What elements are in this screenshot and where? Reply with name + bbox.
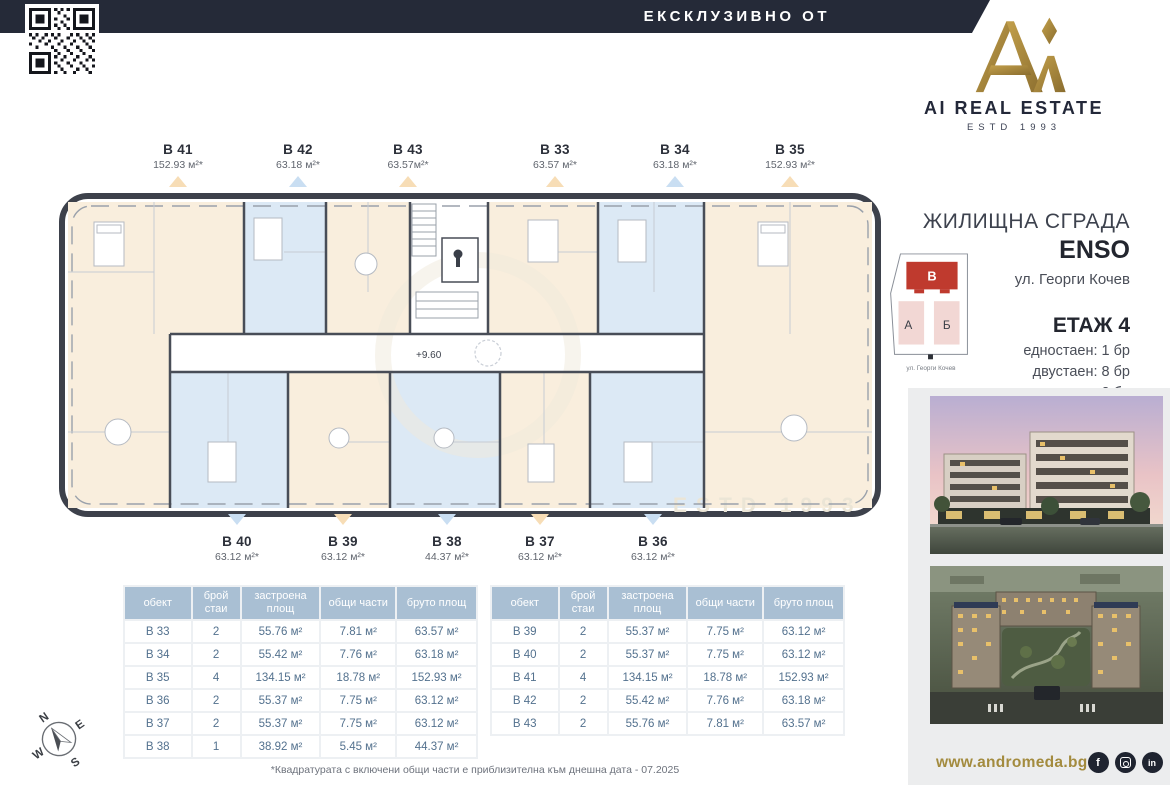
footnote: *Квадратурата с включени общи части е пр… — [60, 764, 890, 776]
compass-e: E — [73, 717, 87, 732]
unit-id: В 40 — [182, 534, 292, 550]
compass-icon: N E S W — [20, 700, 98, 778]
unit-label-b37: В 37 63.12 м²* — [485, 514, 595, 563]
table-cell: В 40 — [492, 644, 558, 665]
unit-id: В 39 — [288, 534, 398, 550]
footer: www.andromeda.bg f in — [936, 752, 1162, 773]
table-cell: В 35 — [125, 667, 191, 688]
floor-plan-area: ESTD 1993 — [58, 192, 882, 518]
compass-s: S — [69, 755, 83, 770]
unit-area: 63.18 м²* — [243, 159, 353, 171]
unit-area: 63.12 м²* — [598, 551, 708, 563]
table-cell: 55.37 м² — [609, 644, 687, 665]
table-row: В 42255.42 м²7.76 м²63.18 м² — [492, 690, 843, 711]
render-exterior — [930, 396, 1163, 554]
unit-marker-icon — [169, 176, 187, 187]
table-cell: 2 — [193, 690, 240, 711]
table-cell: 7.76 м² — [688, 690, 762, 711]
instagram-icon[interactable] — [1115, 752, 1136, 773]
table-cell: 55.42 м² — [242, 644, 320, 665]
col-rooms: брой стаи — [193, 587, 240, 619]
table-cell: 2 — [560, 713, 607, 734]
table-cell: 63.18 м² — [764, 690, 843, 711]
unit-id: В 37 — [485, 534, 595, 550]
unit-id: В 33 — [500, 142, 610, 158]
table-cell: В 41 — [492, 667, 558, 688]
table-cell: 2 — [560, 690, 607, 711]
table-cell: 7.75 м² — [321, 713, 395, 734]
table-cell: 134.15 м² — [609, 667, 687, 688]
unit-area: 63.12 м²* — [485, 551, 595, 563]
table-cell: 7.81 м² — [321, 621, 395, 642]
table-cell: 7.75 м² — [688, 621, 762, 642]
table-cell: 18.78 м² — [321, 667, 395, 688]
unit-label-b41: В 41 152.93 м²* — [123, 142, 233, 192]
floor-plan: ESTD 1993 — [58, 192, 882, 518]
table-cell: В 33 — [125, 621, 191, 642]
unit-id: В 35 — [735, 142, 845, 158]
table-row: В 36255.37 м²7.75 м²63.12 м² — [125, 690, 476, 711]
unit-id: В 42 — [243, 142, 353, 158]
unit-area: 152.93 м²* — [735, 159, 845, 171]
unit-marker-icon — [666, 176, 684, 187]
table-cell: 2 — [560, 644, 607, 665]
unit-area: 63.57 м²* — [500, 159, 610, 171]
unit-label-b33: В 33 63.57 м²* — [500, 142, 610, 192]
website-link[interactable]: www.andromeda.bg — [936, 754, 1088, 772]
table-cell: 44.37 м² — [397, 736, 476, 757]
unit-b34-region — [598, 202, 704, 334]
unit-marker-icon — [644, 514, 662, 525]
brand-name: AI REAL ESTATE — [924, 98, 1104, 119]
table-cell: 63.12 м² — [764, 621, 843, 642]
unit-label-b40: В 40 63.12 м²* — [182, 514, 292, 563]
brand-estd: ESTD 1993 — [967, 122, 1061, 133]
col-common-parts: общи части — [688, 587, 762, 619]
col-built-area: застроена площ — [609, 587, 687, 619]
unit-area: 152.93 м²* — [123, 159, 233, 171]
brand-mark-icon — [939, 8, 1089, 96]
col-gross-area: бруто площ — [397, 587, 476, 619]
unit-area: 63.12 м²* — [182, 551, 292, 563]
table-row: В 39255.37 м²7.75 м²63.12 м² — [492, 621, 843, 642]
site-plan: В А Б ул. Георги Кочев — [886, 250, 976, 378]
unit-marker-icon — [531, 514, 549, 525]
table-cell: 7.81 м² — [688, 713, 762, 734]
facebook-icon[interactable]: f — [1088, 752, 1109, 773]
site-street-label: ул. Георги Кочев — [906, 365, 956, 372]
unit-area: 63.18 м²* — [620, 159, 730, 171]
table-header-row: обект брой стаи застроена площ общи част… — [492, 587, 843, 619]
table-cell: В 42 — [492, 690, 558, 711]
unit-label-b36: В 36 63.12 м²* — [598, 514, 708, 563]
unit-id: В 41 — [123, 142, 233, 158]
table-cell: 63.57 м² — [764, 713, 843, 734]
areas-table-left: обект брой стаи застроена площ общи част… — [123, 585, 478, 759]
table-row: В 34255.42 м²7.76 м²63.18 м² — [125, 644, 476, 665]
table-cell: 4 — [193, 667, 240, 688]
unit-marker-icon — [546, 176, 564, 187]
table-cell: 5.45 м² — [321, 736, 395, 757]
table-cell: В 34 — [125, 644, 191, 665]
table-cell: 63.12 м² — [397, 690, 476, 711]
table-cell: 55.76 м² — [609, 713, 687, 734]
table-cell: 38.92 м² — [242, 736, 320, 757]
unit-label-b43: В 43 63.57м²* — [353, 142, 463, 192]
table-cell: В 43 — [492, 713, 558, 734]
unit-label-b39: В 39 63.12 м²* — [288, 514, 398, 563]
compass-n: N — [37, 710, 51, 725]
table-row: В 40255.37 м²7.75 м²63.12 м² — [492, 644, 843, 665]
table-cell: В 38 — [125, 736, 191, 757]
unit-b40-region — [170, 372, 288, 508]
col-object: обект — [492, 587, 558, 619]
header-banner: ЕКСКЛУЗИВНО ОТ — [0, 0, 990, 33]
table-row: В 43255.76 м²7.81 м²63.57 м² — [492, 713, 843, 734]
col-rooms: брой стаи — [560, 587, 607, 619]
table-cell: 7.75 м² — [321, 690, 395, 711]
table-cell: 63.12 м² — [764, 644, 843, 665]
unit-marker-icon — [228, 514, 246, 525]
level-mark: +9.60 — [416, 350, 442, 361]
unit-marker-icon — [399, 176, 417, 187]
site-block-b-label: Б — [943, 318, 951, 332]
table-cell: В 36 — [125, 690, 191, 711]
table-cell: В 39 — [492, 621, 558, 642]
table-cell: 55.37 м² — [242, 713, 320, 734]
table-row: В 38138.92 м²5.45 м²44.37 м² — [125, 736, 476, 757]
table-cell: 152.93 м² — [764, 667, 843, 688]
table-cell: 2 — [193, 713, 240, 734]
table-row: В 354134.15 м²18.78 м²152.93 м² — [125, 667, 476, 688]
unit-id: В 43 — [353, 142, 463, 158]
qr-pattern — [29, 8, 95, 74]
col-gross-area: бруто площ — [764, 587, 843, 619]
table-cell: В 37 — [125, 713, 191, 734]
unit-marker-icon — [289, 176, 307, 187]
table-cell: 2 — [193, 621, 240, 642]
table-cell: 2 — [560, 621, 607, 642]
site-block-a-label: А — [904, 318, 912, 332]
unit-b36-region — [590, 372, 704, 508]
unit-area: 63.12 м²* — [288, 551, 398, 563]
unit-marker-icon — [334, 514, 352, 525]
table-cell: 7.75 м² — [688, 644, 762, 665]
site-block-v-label: В — [927, 269, 936, 284]
unit-label-b34: В 34 63.18 м²* — [620, 142, 730, 192]
table-cell: 18.78 м² — [688, 667, 762, 688]
table-cell: 63.57 м² — [397, 621, 476, 642]
brand-logo: AI REAL ESTATE ESTD 1993 — [898, 8, 1130, 133]
unit-area: 63.57м²* — [353, 159, 463, 171]
unit-marker-icon — [781, 176, 799, 187]
table-cell: 134.15 м² — [242, 667, 320, 688]
unit-label-b35: В 35 152.93 м²* — [735, 142, 845, 192]
unit-label-b42: В 42 63.18 м²* — [243, 142, 353, 192]
building-type: ЖИЛИЩНА СГРАДА — [900, 210, 1130, 234]
col-object: обект — [125, 587, 191, 619]
linkedin-icon[interactable]: in — [1142, 752, 1163, 773]
table-cell: 1 — [193, 736, 240, 757]
table-cell: 7.76 м² — [321, 644, 395, 665]
table-row: В 37255.37 м²7.75 м²63.12 м² — [125, 713, 476, 734]
col-common-parts: общи части — [321, 587, 395, 619]
banner-label: ЕКСКЛУЗИВНО ОТ — [644, 8, 830, 25]
table-cell: 2 — [193, 644, 240, 665]
table-row: В 414134.15 м²18.78 м²152.93 м² — [492, 667, 843, 688]
table-cell: 152.93 м² — [397, 667, 476, 688]
table-cell: 55.76 м² — [242, 621, 320, 642]
areas-table-right: обект брой стаи застроена площ общи част… — [490, 585, 845, 736]
table-cell: 63.18 м² — [397, 644, 476, 665]
table-cell: 4 — [560, 667, 607, 688]
table-cell: 55.37 м² — [609, 621, 687, 642]
table-header-row: обект брой стаи застроена площ общи част… — [125, 587, 476, 619]
unit-id: В 36 — [598, 534, 708, 550]
col-built-area: застроена площ — [242, 587, 320, 619]
table-cell: 55.37 м² — [242, 690, 320, 711]
social-icons: f in — [1088, 752, 1163, 773]
unit-marker-icon — [438, 514, 456, 525]
render-aerial — [930, 566, 1163, 724]
table-cell: 63.12 м² — [397, 713, 476, 734]
table-cell: 55.42 м² — [609, 690, 687, 711]
flyer-page: ЕКСКЛУЗИВНО ОТ AI REAL ESTATE ESTD 1993 — [0, 0, 1170, 785]
table-row: В 33255.76 м²7.81 м²63.57 м² — [125, 621, 476, 642]
unit-id: В 34 — [620, 142, 730, 158]
qr-code — [25, 4, 99, 78]
